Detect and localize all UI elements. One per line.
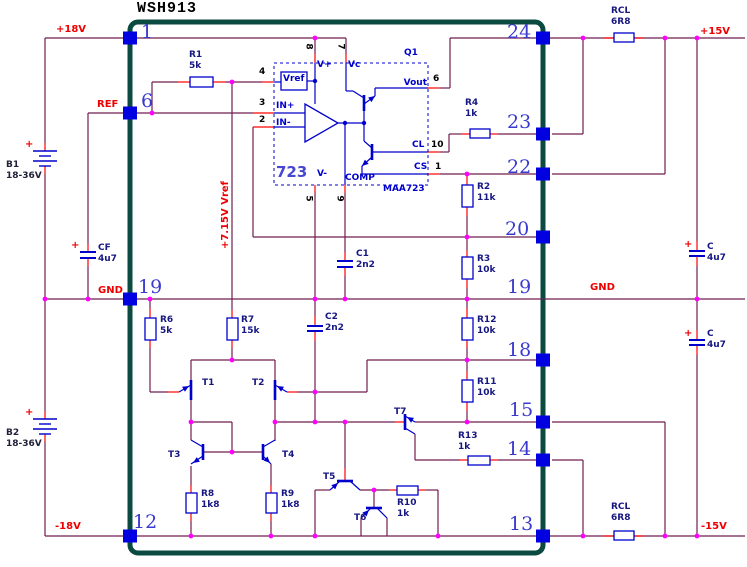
pin-bump-1 — [123, 32, 137, 45]
pin-bump-14 — [536, 454, 550, 467]
label-components-r6-ref: R6 — [160, 316, 173, 325]
label-labels-rail_m15: -15V — [701, 522, 727, 532]
label-components-r6-val: 5k — [160, 327, 172, 336]
label-components-r3-val: 10k — [477, 266, 496, 275]
label-components-t6-ref: T6 — [354, 514, 366, 523]
label-module-pins-p19l: 19 — [138, 278, 162, 297]
pin-bump-23 — [536, 128, 550, 141]
label-components-r7-ref: R7 — [241, 316, 254, 325]
label-components-t4-ref: T4 — [282, 451, 294, 460]
pin-bump-24 — [536, 32, 550, 45]
label-components-r12-val: 10k — [477, 327, 496, 336]
label-ic-pins-n8: 8 — [304, 42, 313, 52]
label-module-pins-p24: 24 — [507, 23, 531, 42]
resistor-R7 — [227, 318, 238, 340]
label-components-r13-val: 1k — [458, 443, 470, 452]
pin-bump-22 — [536, 168, 550, 181]
label-module-pins-p1: 1 — [141, 23, 153, 42]
label-components-r9-val: 1k8 — [281, 501, 300, 510]
label-components-r9-ref: R9 — [281, 490, 294, 499]
label-components-c_bottom-val: 4u7 — [707, 341, 726, 350]
schematic-canvas: WSH913161912242322201918151413+18VREFGND… — [0, 0, 747, 567]
label-labels-plus: + — [684, 240, 692, 250]
label-labels-plus: + — [71, 241, 79, 251]
label-components-t2-ref: T2 — [252, 379, 264, 388]
pin-bump-15 — [536, 416, 550, 429]
label-components-r11-ref: R11 — [477, 378, 496, 387]
label-components-r13-ref: R13 — [458, 432, 477, 441]
label-ic-labels-cs: CS — [414, 163, 427, 172]
resistor-R6 — [145, 318, 156, 340]
label-module-pins-p14: 14 — [507, 440, 531, 459]
opamp-symbol — [305, 104, 338, 142]
label-components-t7-ref: T7 — [394, 408, 406, 417]
label-labels-plus: + — [684, 329, 692, 339]
resistor-R9 — [266, 493, 277, 513]
pin-bump-19 — [123, 293, 137, 306]
label-components-r1-ref: R1 — [189, 51, 202, 60]
label-components-r10-ref: R10 — [397, 499, 416, 508]
label-module-pins-p18: 18 — [507, 341, 531, 360]
label-components-r11-val: 10k — [477, 389, 496, 398]
label-ic-labels-vplus: V+ — [317, 61, 332, 70]
resistor-RCL-bottom — [614, 531, 634, 540]
label-module-pins-p20: 20 — [505, 220, 529, 239]
label-ic-pins-n4: 4 — [259, 68, 265, 77]
label-components-c1-val: 2n2 — [356, 261, 375, 270]
pin-bump-6 — [123, 107, 137, 120]
component-bodies — [145, 33, 634, 540]
label-ic-pins-n7: 7 — [336, 42, 345, 52]
label-components-c_top-ref: C — [707, 243, 714, 252]
label-components-cf-ref: CF — [98, 244, 111, 253]
resistor-RCL-top — [614, 33, 634, 42]
label-components-rcl_bottom-val: 6R8 — [611, 514, 630, 523]
label-components-r1-val: 5k — [189, 62, 201, 71]
label-components-b1-ref: B1 — [6, 161, 19, 170]
label-ic-pins-n5: 5 — [304, 194, 313, 204]
resistor-R3 — [462, 257, 473, 279]
label-ic-q: Q1 — [404, 49, 418, 58]
resistor-R8 — [186, 493, 197, 513]
label-module-pins-p22: 22 — [507, 158, 531, 177]
label-ic-labels-vc: Vc — [348, 61, 360, 70]
module-outline — [130, 22, 543, 553]
label-ic-pins-n6: 6 — [433, 75, 439, 84]
resistor-R12 — [462, 318, 473, 340]
label-components-t1-ref: T1 — [202, 379, 214, 388]
resistor-R11 — [462, 380, 473, 402]
label-module-pins-p12: 12 — [133, 513, 157, 532]
resistor-R2 — [462, 185, 473, 207]
label-components-r2-ref: R2 — [477, 183, 490, 192]
label-module-pins-p15: 15 — [509, 401, 533, 420]
label-components-c2-val: 2n2 — [325, 324, 344, 333]
label-module-pins-p23: 23 — [507, 113, 531, 132]
label-labels-rail_p15: +15V — [700, 27, 730, 37]
label-ic-pins-n3: 3 — [259, 99, 265, 108]
resistor-R13 — [468, 456, 490, 465]
label-components-c_bottom-ref: C — [707, 330, 714, 339]
label-ic-pins-n1: 1 — [435, 163, 441, 172]
label-ic-family: 723 — [276, 165, 307, 180]
label-components-r4-ref: R4 — [465, 99, 478, 108]
resistor-R10 — [397, 486, 418, 495]
label-labels-plus: + — [25, 408, 33, 418]
label-components-rcl_top-val: 6R8 — [611, 18, 630, 27]
label-components-t3-ref: T3 — [168, 451, 180, 460]
label-ic-labels-vout: Vout — [402, 79, 427, 88]
label-components-r10-val: 1k — [397, 510, 409, 519]
resistor-R4 — [470, 129, 490, 138]
label-labels-rail_m18: -18V — [55, 522, 81, 532]
label-ic-labels-inn: IN- — [276, 119, 291, 128]
label-ic-pins-n10: 10 — [431, 141, 444, 150]
label-components-r7-val: 15k — [241, 327, 260, 336]
label-components-r8-ref: R8 — [201, 490, 214, 499]
label-labels-vref_rail: +7.15V Vref — [221, 177, 231, 253]
label-ic-pins-n9: 9 — [335, 194, 344, 204]
label-components-t5-ref: T5 — [323, 473, 335, 482]
label-ic-part: MAA723 — [383, 185, 425, 194]
label-ic-labels-vminus: V- — [317, 170, 327, 179]
label-components-b2-ref: B2 — [6, 429, 19, 438]
pin-bump-18 — [536, 354, 550, 367]
label-ic-labels-vref: Vref — [283, 75, 304, 84]
label-labels-rail_gnd_l: GND — [98, 286, 123, 296]
label-ic-labels-comp: COMP — [345, 174, 375, 183]
label-labels-rail_p18: +18V — [56, 25, 86, 35]
label-ic-labels-cl: CL — [412, 141, 424, 150]
label-labels-rail_gnd_r: GND — [590, 283, 615, 293]
ic-internal-and-transistors — [179, 63, 428, 518]
label-module-pins-p19r: 19 — [507, 278, 531, 297]
schematic-svg — [0, 0, 747, 567]
label-components-rcl_top-ref: RCL — [611, 7, 630, 16]
label-labels-plus: + — [25, 140, 33, 150]
label-title: WSH913 — [137, 1, 197, 16]
label-components-rcl_bottom-ref: RCL — [611, 503, 630, 512]
label-components-r3-ref: R3 — [477, 255, 490, 264]
label-components-r4-val: 1k — [465, 110, 477, 119]
module-pins — [123, 32, 550, 543]
label-components-cf-val: 4u7 — [98, 255, 117, 264]
pin-bump-13 — [536, 530, 550, 543]
label-ic-pins-n2: 2 — [259, 116, 265, 125]
label-components-r12-ref: R12 — [477, 316, 496, 325]
label-components-c1-ref: C1 — [356, 250, 369, 259]
label-components-r8-val: 1k8 — [201, 501, 220, 510]
label-module-pins-p13: 13 — [509, 515, 533, 534]
label-components-b1-val: 18-36V — [6, 172, 42, 181]
label-ic-labels-inp: IN+ — [276, 102, 294, 111]
pin-bump-20 — [536, 231, 550, 244]
label-components-c_top-val: 4u7 — [707, 254, 726, 263]
resistor-R1 — [190, 77, 213, 87]
label-components-c2-ref: C2 — [325, 313, 338, 322]
label-labels-rail_ref: REF — [97, 100, 118, 110]
label-components-r2-val: 11k — [477, 194, 496, 203]
label-components-b2-val: 18-36V — [6, 440, 42, 449]
label-module-pins-p6: 6 — [141, 92, 153, 111]
